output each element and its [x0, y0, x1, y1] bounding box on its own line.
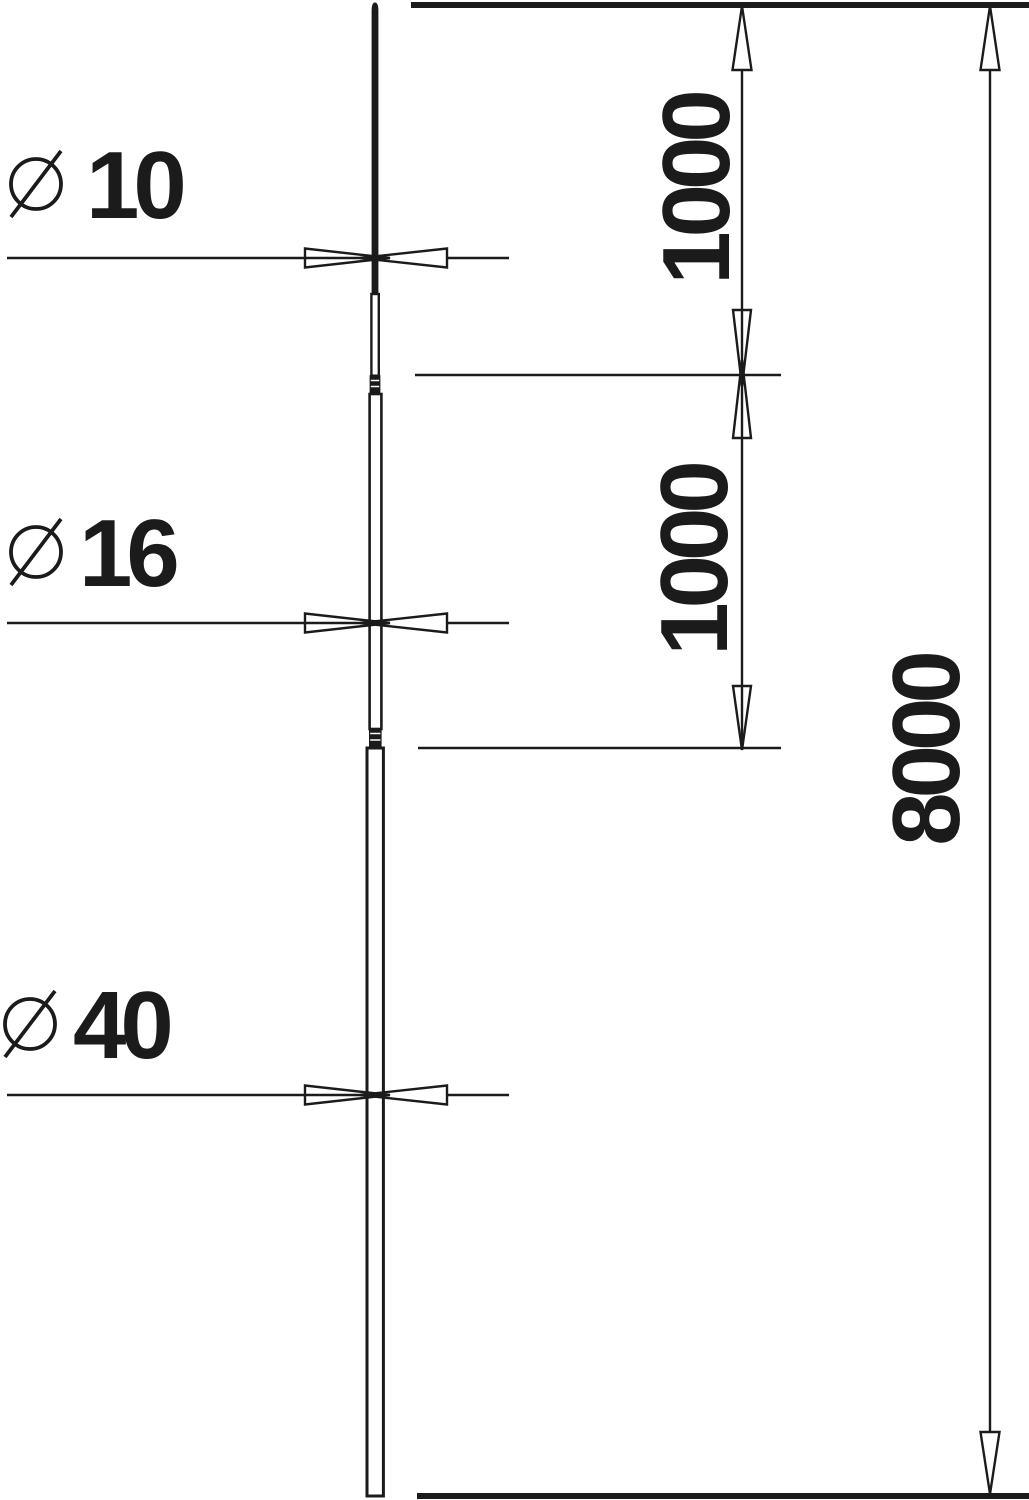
- label-dia-10: 10: [11, 132, 183, 239]
- len-1000-top-value: 1000: [643, 93, 750, 285]
- rod-section-d10-outline: [371, 294, 378, 376]
- rod-coupling-1: [370, 375, 381, 395]
- rod-coupling-2: [369, 728, 382, 748]
- dimension-d40: [7, 1086, 509, 1105]
- dimension-d10: [7, 249, 509, 268]
- drawing-canvas: 10 16 40 1000 1000 8000: [0, 0, 1029, 1500]
- label-dia-40: 40: [5, 972, 170, 1079]
- dia-10-value: 10: [86, 132, 183, 239]
- dia-40-value: 40: [73, 972, 170, 1079]
- diameter-icon: [11, 519, 61, 585]
- label-dia-16: 16: [11, 500, 176, 607]
- len-1000-mid-value: 1000: [641, 464, 748, 656]
- diameter-icon: [11, 151, 61, 217]
- arrowhead-down-icon: [981, 1432, 1000, 1494]
- dimension-8000: [981, 6, 1000, 1494]
- diameter-icon: [5, 991, 55, 1057]
- dia-16-value: 16: [79, 500, 176, 607]
- arrowhead-up-icon: [733, 6, 752, 70]
- len-8000-value: 8000: [873, 654, 980, 846]
- dimension-d16: [7, 614, 509, 633]
- technical-drawing-svg: 10 16 40 1000 1000 8000: [0, 0, 1029, 1500]
- arrowhead-up-icon: [981, 6, 1000, 70]
- rod-section-d40-outline: [367, 748, 383, 1496]
- rod-section-d10-solid: [372, 3, 379, 297]
- rod-section-d16-outline: [370, 394, 382, 729]
